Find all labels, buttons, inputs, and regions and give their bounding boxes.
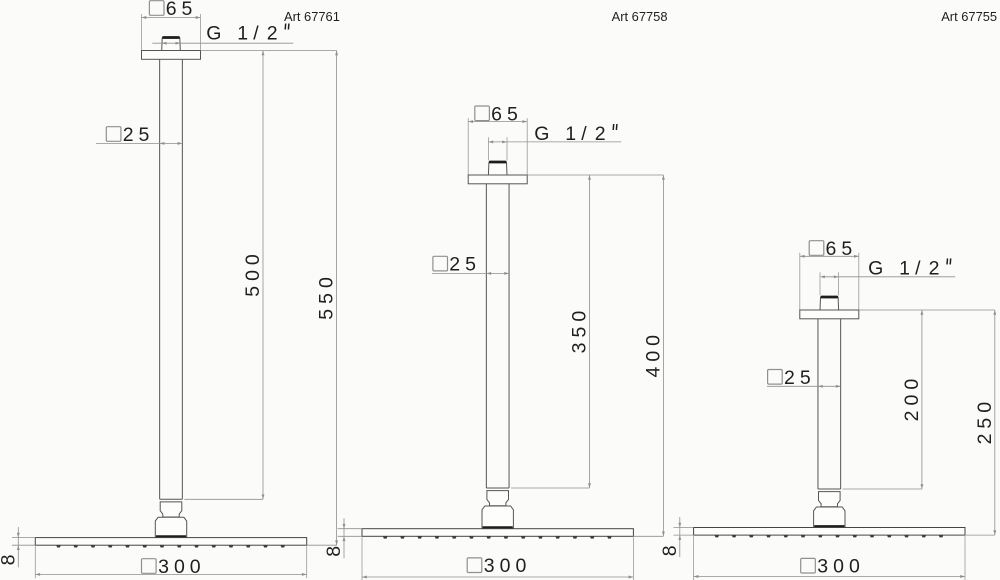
svg-text:8: 8 <box>0 554 19 565</box>
svg-text:250: 250 <box>974 397 996 445</box>
svg-text:500: 500 <box>242 249 264 297</box>
svg-text:300: 300 <box>817 556 865 578</box>
svg-text:65: 65 <box>826 238 858 260</box>
svg-text:65: 65 <box>166 0 198 20</box>
svg-text:25: 25 <box>449 254 481 276</box>
svg-text:G1/2: G1/2 <box>206 23 277 45</box>
svg-text:8: 8 <box>659 545 681 556</box>
svg-text:Art 67755: Art 67755 <box>941 9 997 24</box>
svg-text:550: 550 <box>316 272 338 320</box>
svg-text:200: 200 <box>901 374 923 422</box>
svg-text:Art 67758: Art 67758 <box>612 9 668 24</box>
svg-text:Art 67761: Art 67761 <box>284 9 340 24</box>
svg-text:8: 8 <box>323 546 345 557</box>
svg-text:25: 25 <box>123 124 155 146</box>
svg-text:25: 25 <box>784 367 816 389</box>
svg-text:350: 350 <box>569 306 591 354</box>
svg-text:G1/2: G1/2 <box>868 257 939 279</box>
svg-text:300: 300 <box>484 555 532 577</box>
svg-text:400: 400 <box>643 330 665 378</box>
